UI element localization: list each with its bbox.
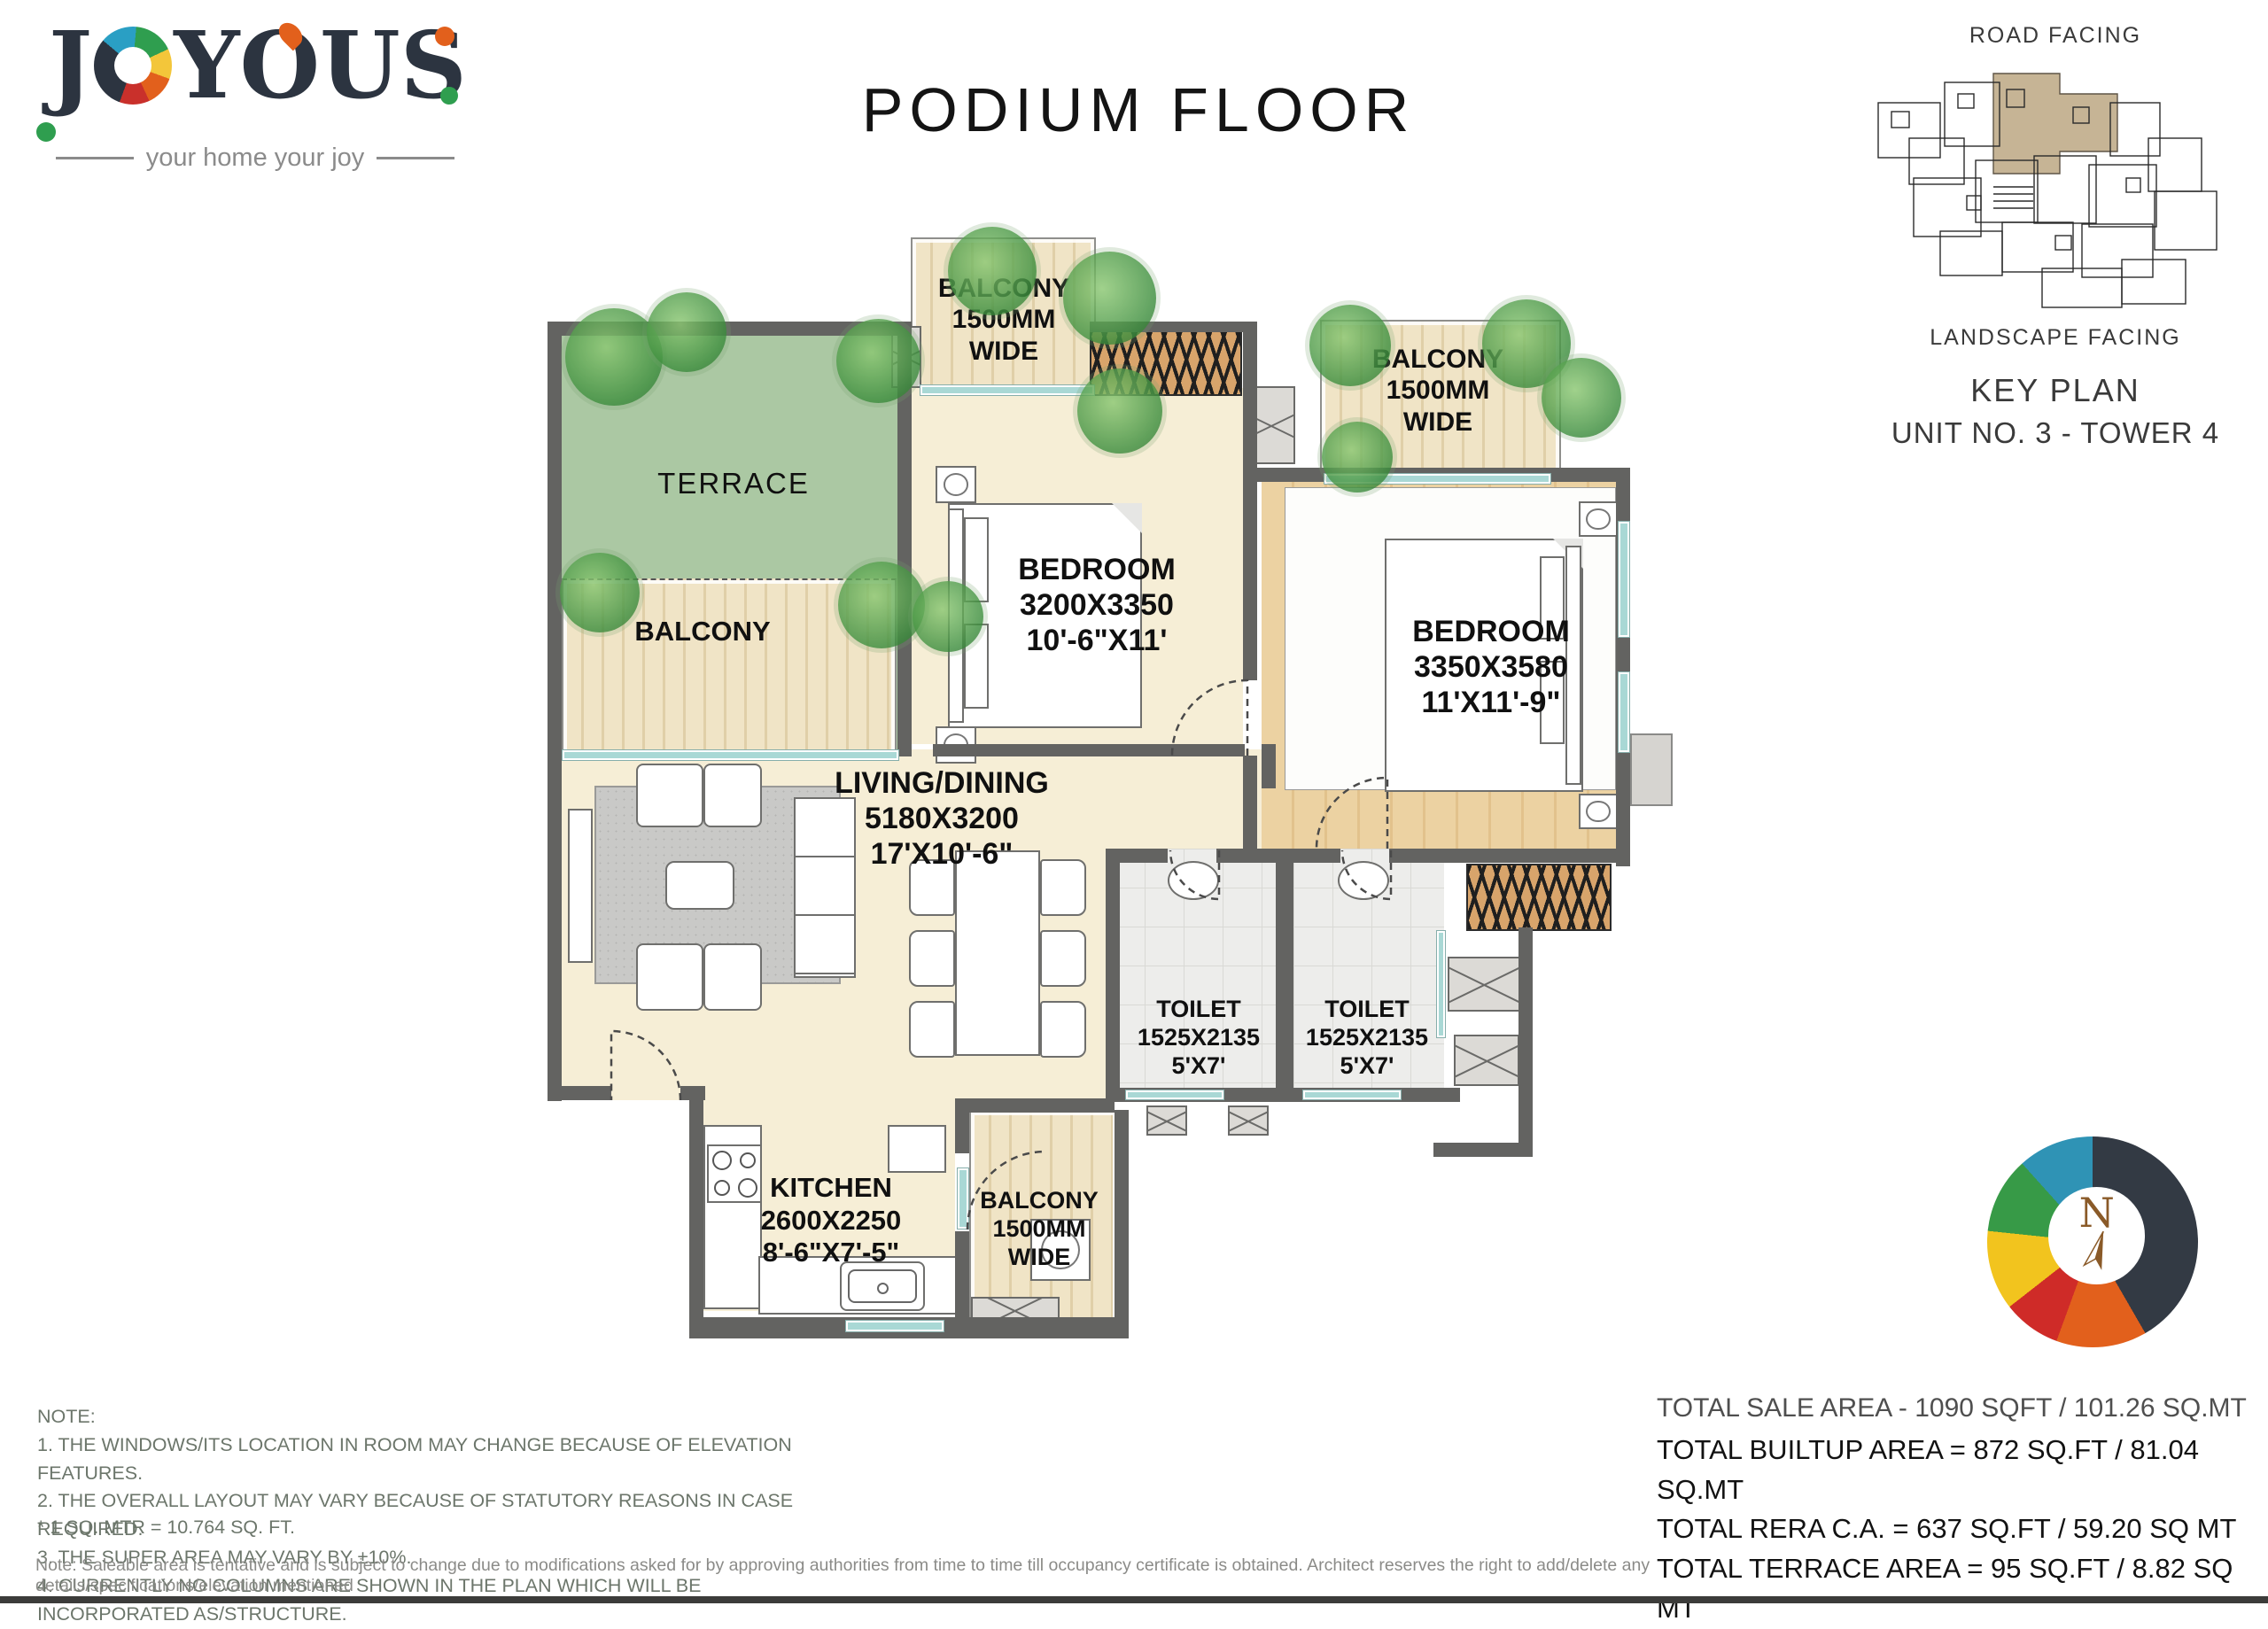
total-sale-area: TOTAL SALE AREA - 1090 SQFT / 101.26 SQ.… [1657,1389,2268,1427]
landscape-facing-label: LANDSCAPE FACING [1930,325,2180,351]
pinwheel-o-icon [94,27,172,105]
toilet2-label: TOILET1525X21355'X7' [1285,989,1449,1088]
tree-icon [647,292,726,372]
key-plan-unit: UNIT NO. 3 - TOWER 4 [1891,416,2219,450]
tagline-text: your home your joy [146,144,365,173]
bedroom1-label: BEDROOM3200X335010'-6"X11' [964,547,1230,663]
tree-icon [948,227,1037,315]
tree-icon [838,562,925,648]
tree-icon [1542,358,1621,438]
compass-north-label: N [2079,1195,2115,1231]
tree-icon [1063,252,1156,345]
tree-icon [1077,368,1162,454]
compass-hub: N [2048,1187,2145,1284]
total-builtup-area: TOTAL BUILTUP AREA = 872 SQ.FT / 81.04 S… [1657,1431,2268,1509]
brand-letters: YOUS [174,19,467,112]
floor-plan: TERRACE BALCONY BALCONY1500MMWIDE BALCON… [548,237,1695,1389]
tree-icon [560,553,640,632]
total-rera-area: TOTAL RERA C.A. = 637 SQ.FT / 59.20 SQ M… [1657,1509,2268,1549]
tree-icon [913,581,983,652]
green-dot-icon [36,122,56,142]
area-totals: TOTAL SALE AREA - 1090 SQFT / 101.26 SQ.… [1657,1389,2268,1628]
key-plan-drawing [1860,54,2250,320]
key-plan: ROAD FACING LANDSCAPE FACING KEY PLAN UN… [1847,23,2264,450]
conversion-note: * 1 SQ. MTR = 10.764 SQ. FT. [37,1517,295,1539]
road-facing-label: ROAD FACING [1969,23,2141,49]
toilet1-label: TOILET1525X21355'X7' [1119,989,1278,1088]
brand-tagline: your home your joy [56,144,454,173]
orange-dot-icon [435,27,454,46]
page-title: PODIUM FLOOR [846,74,1431,145]
key-plan-heading: KEY PLAN [1970,372,2140,409]
brand-wordmark: JYOUS [49,19,467,112]
brand-logo: JYOUS your home your joy [49,19,465,175]
note-item: 1. THE WINDOWS/ITS LOCATION IN ROOM MAY … [37,1431,852,1488]
compass-icon: N [1987,1136,2198,1347]
disclaimer-note: Note: Saleable area is tentative and is … [35,1555,1860,1596]
notes-heading: NOTE: [37,1403,852,1431]
kitchen-label: KITCHEN2600X22508'-6"X7'-5" [716,1167,946,1274]
tree-icon [836,319,920,403]
tree-icon [1322,422,1393,493]
tree-icon [1309,305,1391,386]
green-dot-icon [440,87,458,105]
terrace-label: TERRACE [601,457,866,510]
total-terrace-area: TOTAL TERRACE AREA = 95 SQ.FT / 8.82 SQ … [1657,1549,2268,1628]
bedroom2-label: BEDROOM3350X358011'X11'-9" [1367,609,1615,725]
page-bottom-edge [0,1596,2268,1603]
balcony-bottom-label: BALCONY1500MMWIDE [964,1159,1115,1300]
living-label: LIVING/DINING5180X320017'X10'-6" [796,767,1088,870]
